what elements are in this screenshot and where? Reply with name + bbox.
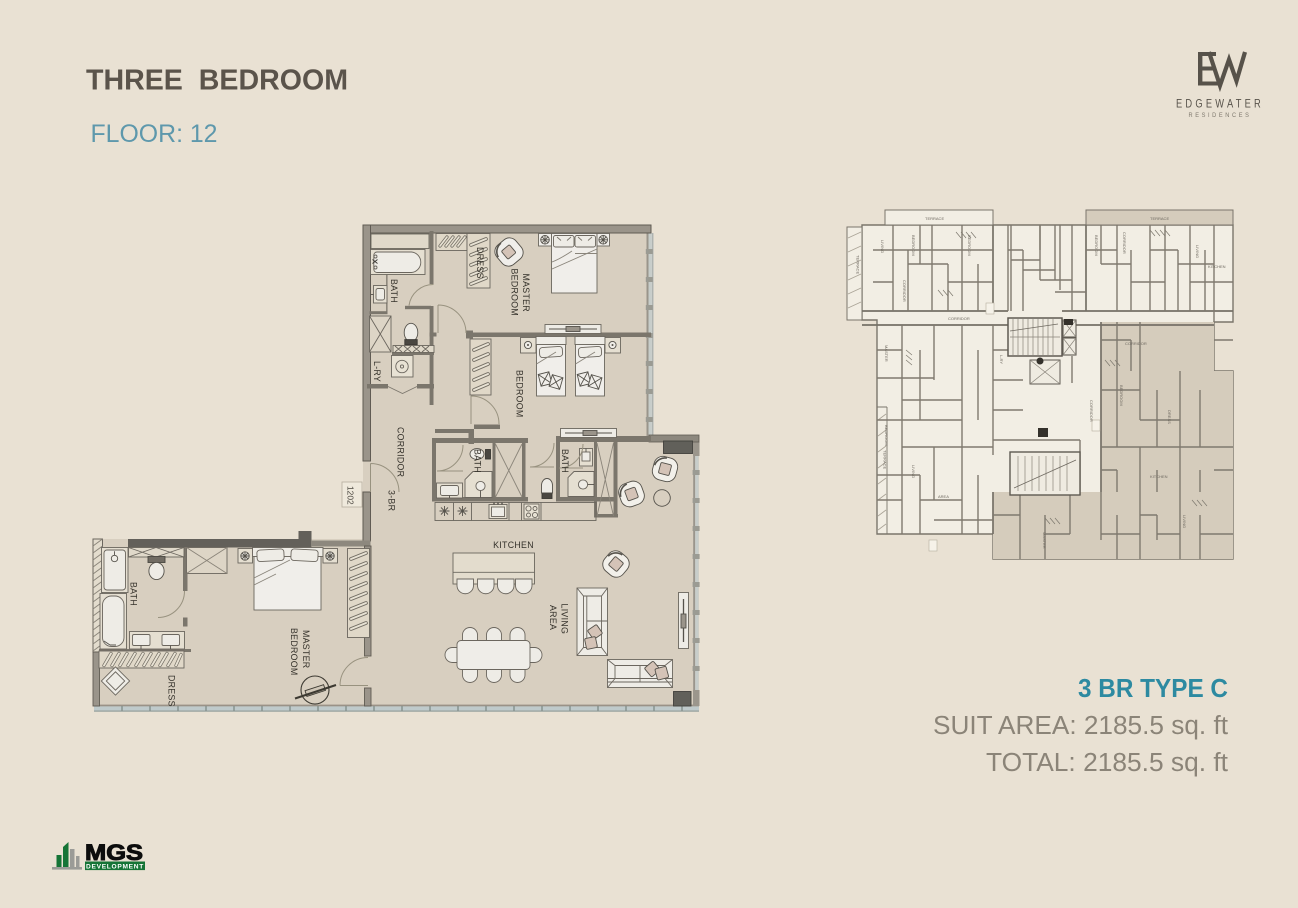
svg-text:MASTER: MASTER (521, 274, 531, 312)
svg-text:LIVING: LIVING (911, 465, 916, 478)
svg-text:LIVING: LIVING (880, 240, 885, 253)
svg-text:CORRIDOR: CORRIDOR (948, 316, 970, 321)
svg-text:3 BR TYPE C: 3 BR TYPE C (1078, 673, 1228, 703)
svg-text:MGS: MGS (85, 840, 143, 865)
svg-text:CORRIDOR: CORRIDOR (1122, 232, 1127, 254)
svg-text:BEDROOM: BEDROOM (1119, 385, 1124, 406)
svg-text:BEDROOM: BEDROOM (911, 235, 916, 256)
svg-text:BEDROOM: BEDROOM (515, 370, 525, 418)
svg-text:MASTER: MASTER (301, 630, 311, 668)
svg-text:TOTAL: 2185.5 sq. ft: TOTAL: 2185.5 sq. ft (986, 749, 1228, 777)
svg-text:BEDROOM: BEDROOM (967, 235, 972, 256)
svg-text:KITCHEN: KITCHEN (1150, 474, 1168, 479)
svg-text:BEDROOM: BEDROOM (510, 269, 520, 317)
svg-text:BEDROOM: BEDROOM (289, 628, 299, 676)
svg-text:LIVING: LIVING (1182, 515, 1187, 528)
svg-text:RESIDENCES: RESIDENCES (1189, 112, 1252, 119)
svg-text:DEVELOPMENT: DEVELOPMENT (86, 864, 144, 871)
svg-text:EDGEWATER: EDGEWATER (1176, 99, 1264, 111)
svg-text:THREE BEDROOM: THREE BEDROOM (86, 65, 348, 97)
svg-text:BATH: BATH (473, 449, 483, 473)
svg-text:TERRACE: TERRACE (925, 216, 944, 221)
svg-text:L-RY: L-RY (372, 361, 382, 382)
svg-text:KITCHEN: KITCHEN (493, 540, 534, 550)
svg-text:TERRACE: TERRACE (1150, 216, 1169, 221)
svg-text:FLOOR: 12: FLOOR: 12 (91, 120, 218, 148)
svg-text:DRESS: DRESS (167, 675, 177, 707)
svg-text:CORRIDOR: CORRIDOR (1089, 400, 1094, 422)
svg-text:BEDROOM: BEDROOM (1094, 235, 1099, 256)
svg-text:AREA: AREA (938, 494, 949, 499)
svg-text:TERRACE: TERRACE (856, 255, 861, 274)
svg-text:DRESS: DRESS (475, 247, 485, 279)
svg-text:3-BR: 3-BR (387, 490, 397, 511)
svg-text:BATH: BATH (389, 279, 399, 303)
svg-text:LIVING: LIVING (560, 604, 570, 635)
svg-text:DRESS: DRESS (1167, 410, 1172, 424)
svg-text:L-RY: L-RY (999, 355, 1004, 364)
svg-text:BATH: BATH (560, 449, 570, 473)
svg-text:KITCHEN: KITCHEN (1208, 264, 1226, 269)
svg-text:CORRIDOR: CORRIDOR (1125, 341, 1147, 346)
svg-text:LIVING: LIVING (1195, 245, 1200, 258)
svg-text:TERRACE: TERRACE (883, 450, 888, 469)
svg-text:1202: 1202 (346, 486, 356, 505)
svg-text:BATH: BATH (129, 582, 139, 606)
svg-text:BEDROOM: BEDROOM (884, 425, 889, 446)
svg-text:MASTER: MASTER (884, 345, 889, 362)
svg-text:MASTER: MASTER (1042, 532, 1047, 549)
svg-text:AREA: AREA (548, 605, 558, 630)
svg-text:CORRIDOR: CORRIDOR (902, 280, 907, 302)
svg-text:CORRIDOR: CORRIDOR (396, 427, 406, 477)
svg-text:SUIT AREA: 2185.5 sq. ft: SUIT AREA: 2185.5 sq. ft (933, 712, 1228, 740)
